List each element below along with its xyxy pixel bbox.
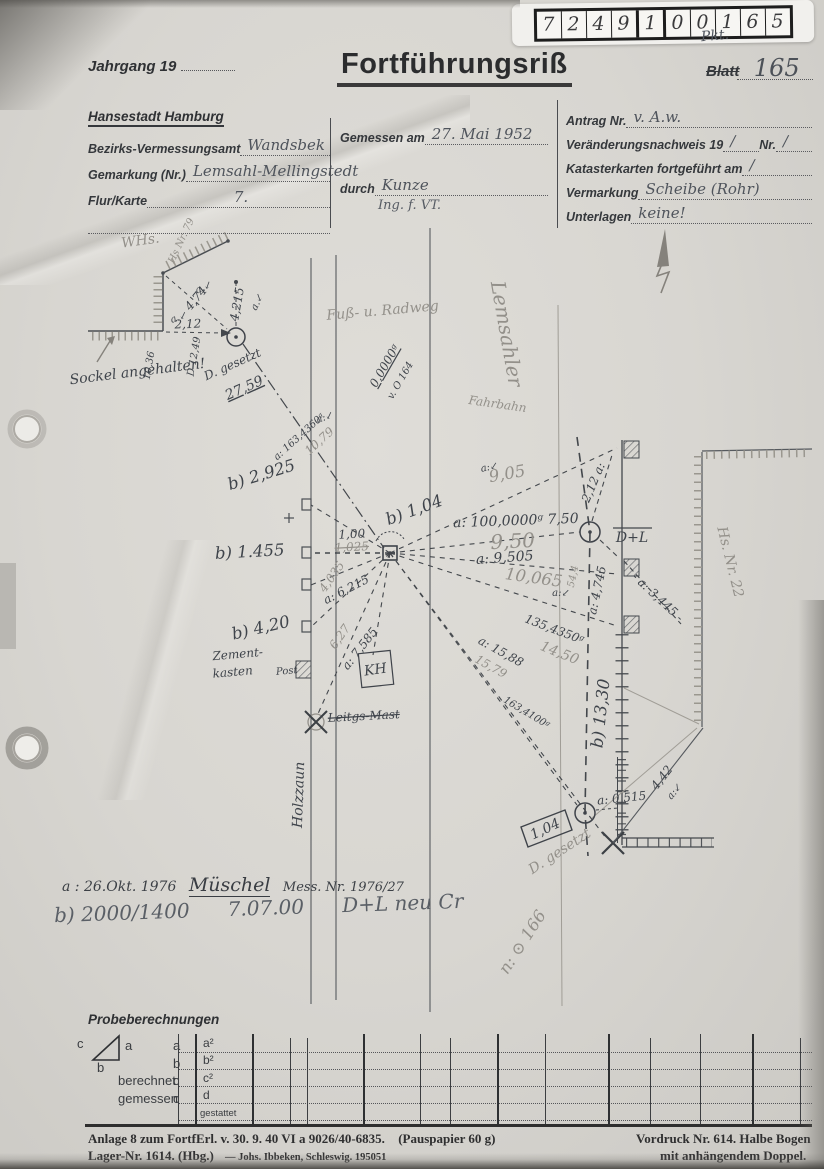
- sketch-label: 0,0000ᵍ: [367, 341, 403, 390]
- table-dotted-line: [178, 1086, 812, 1087]
- sketch-labels: WHs.Hs Nr. 79Sockel angehalten!a.↙a.↙a.↙…: [69, 216, 747, 977]
- sketch-label: 4,42: [647, 763, 675, 793]
- arrowhead: [221, 329, 231, 337]
- sketch-label: kasten: [212, 663, 253, 680]
- sketch-label: D. gesetzt: [525, 825, 594, 878]
- col-header: c²: [203, 1071, 213, 1085]
- sketch-label: D+L: [615, 530, 648, 546]
- sketch-label: Hs. Nr. 22: [713, 524, 746, 599]
- sketch-label: 2,12 a:: [578, 460, 608, 505]
- form-row: Gemarkung (Nr.) Lemsahl-Mellingstedt: [88, 162, 330, 182]
- table-vline: [752, 1034, 754, 1125]
- city-label: Hansestadt Hamburg: [88, 109, 224, 127]
- page-title: Fortführungsriß: [337, 48, 572, 87]
- field-label: Gemessen am: [340, 131, 425, 145]
- stamp-digit: 9: [611, 10, 638, 37]
- field-label: Katasterkarten fortgeführt am: [566, 162, 742, 176]
- sketch-label: a: 163,4360ᵍ: [272, 411, 328, 463]
- footer-doppel: mit anhängendem Doppel.: [660, 1148, 806, 1164]
- sketch-label: 6,27: [326, 621, 353, 651]
- field-value: Lemsahl-Mellingstedt: [186, 162, 330, 182]
- sketch-label: 163,4100ᵍ: [501, 695, 552, 732]
- sketch-label: 10,065: [504, 564, 564, 591]
- triangle-label-a: a: [125, 1038, 132, 1053]
- table-dotted-line: [178, 1069, 812, 1070]
- probe-table: Probeberechnungen c a b a b berechnet c …: [85, 1012, 812, 1130]
- footer-regulation: Anlage 8 zum FortfErl. v. 30. 9. 40 VI a…: [88, 1131, 385, 1146]
- table-vline: [178, 1034, 179, 1125]
- building-measure-lines: [166, 276, 236, 333]
- sketch-label: 4,215: [227, 286, 247, 323]
- sketch-label: b) 4,20: [230, 612, 292, 644]
- survey-point-circle-right: [580, 522, 600, 542]
- table-vline: [545, 1034, 546, 1125]
- table-vline: [650, 1038, 651, 1125]
- scan-top-edge: [0, 0, 520, 8]
- sketch-label: 9,50: [490, 528, 536, 554]
- sketch-label: 1,04: [528, 816, 563, 844]
- paper-crease: [0, 540, 300, 800]
- sketch-label: 10,36: [142, 350, 158, 381]
- field-value: Scheibe (Rohr): [638, 180, 812, 200]
- crossed-out-point: [602, 832, 624, 854]
- blatt-label: Blatt: [706, 63, 739, 80]
- sketch-label: a: 100,0000ᵍ 7,50: [453, 511, 579, 531]
- footer-printer: — Johs. Ibbeken, Schleswig. 195051: [225, 1152, 386, 1163]
- table-vline: [497, 1034, 499, 1125]
- sketch-label: a: 4,745: [585, 565, 609, 616]
- form-row: Vermarkung Scheibe (Rohr): [566, 180, 812, 200]
- sketch-label: a:↙: [315, 409, 335, 425]
- wall-corner-point: [234, 280, 238, 284]
- sketch-label: Post: [275, 665, 299, 678]
- form-divider: [330, 118, 331, 228]
- sketch-label: a: 7,585: [339, 625, 380, 673]
- field-value: ∕: [742, 156, 812, 176]
- sketch-label: Lemsahler: [486, 278, 529, 390]
- sketch-label: v. O 164: [386, 360, 416, 401]
- sketch-label: D. gesetzt: [201, 346, 263, 384]
- table-vline: [450, 1038, 451, 1125]
- pkt-annotation: Pkt.: [700, 27, 729, 45]
- sketch-label: D 12,49: [185, 335, 203, 378]
- sketch-label: b) 1.455: [215, 540, 285, 563]
- table-vline: [700, 1034, 701, 1125]
- sketch-label: - a: 3,445 -: [629, 570, 686, 625]
- sketch-label: 54,4: [566, 564, 581, 588]
- footer-vordruck: Vordruck Nr. 614. Halbe Bogen: [636, 1131, 811, 1147]
- form-row: Flur/Karte 7.: [88, 188, 330, 208]
- sketch-label: Sockel angehalten!: [69, 356, 206, 389]
- north-arrow-icon: [657, 229, 669, 293]
- building-walls: [88, 236, 230, 336]
- footer-line-1: Anlage 8 zum FortfErl. v. 30. 9. 40 VI a…: [88, 1131, 495, 1147]
- footer-paper-spec: (Pauspapier 60 g): [398, 1131, 495, 1146]
- traverse-dashed-line: [577, 437, 590, 856]
- central-station-point: [376, 532, 404, 560]
- sketch-label: 4,74: [181, 284, 210, 314]
- col-header: b²: [203, 1053, 214, 1067]
- field-label: Gemarkung (Nr.): [88, 168, 186, 182]
- annotation-date: a : 26.Okt. 1976: [62, 879, 176, 895]
- stamp-digit: 0: [665, 9, 690, 36]
- form-row: Katasterkarten fortgeführt am ∕: [566, 156, 812, 176]
- field-label: Unterlagen: [566, 210, 631, 224]
- field-value: v. A.w.: [626, 108, 812, 128]
- sockel-arrow: [97, 336, 115, 362]
- measure-line-dashdot: [243, 344, 384, 548]
- sketch-label: a.↙: [194, 279, 215, 296]
- sketch-label: KH: [362, 660, 388, 679]
- blatt-value: 165: [754, 54, 800, 82]
- triangle-label-c: c: [77, 1036, 84, 1051]
- form-row: Veränderungsnachweis 19 ∕ Nr. ∕: [566, 132, 812, 152]
- sketch-label: a: 9,505: [475, 548, 534, 568]
- sketch-label: Zement-: [211, 645, 264, 663]
- jahrgang-label: Jahrgang 19: [88, 58, 176, 75]
- blatt-dotted-line: [737, 79, 813, 80]
- row-label: berechnet: [118, 1073, 176, 1088]
- annotation-signature: Müschel: [189, 874, 271, 897]
- sketch-label: a: 15,88: [476, 633, 526, 669]
- stamp-digit: 7: [536, 11, 561, 38]
- brick-wall: [618, 757, 715, 847]
- scan-corner-shadow: [0, 0, 150, 110]
- field-value: keine!: [631, 204, 812, 224]
- jahrgang-field: Jahrgang 19: [88, 57, 235, 75]
- col-header: a²: [203, 1036, 214, 1050]
- sketch-label: 1,00: [338, 526, 366, 541]
- col-header: d: [203, 1088, 210, 1102]
- sketch-label: n: ⊙ 166: [495, 907, 550, 978]
- row-label: gemessen: [118, 1091, 178, 1106]
- survey-point-circle-top: [227, 328, 245, 346]
- field-label: Bezirks-Vermessungsamt: [88, 142, 240, 156]
- form-right-column: Antrag Nr. v. A.w. Veränderungsnachweis …: [566, 108, 812, 230]
- sketch-label: 2,12: [173, 317, 201, 332]
- sketch-label: Holzzaun: [290, 761, 308, 829]
- measurement-rays: [311, 448, 617, 838]
- table-vline: [800, 1038, 801, 1125]
- hole-punch-top: [10, 412, 44, 446]
- surveyor-title: Ing. f. VT.: [378, 198, 441, 213]
- stamp-digit: 4: [586, 10, 611, 37]
- sketch-label: 1,025: [334, 539, 369, 555]
- field-value: ∕: [776, 132, 812, 152]
- sketch-label: a: 0,515: [596, 788, 647, 807]
- field-label: Antrag Nr.: [566, 114, 626, 128]
- sketch-label: 14,50: [538, 638, 581, 668]
- field-label: Veränderungsnachweis 19: [566, 138, 723, 152]
- kh-box: [358, 650, 393, 687]
- stamp-digit: 6: [740, 8, 765, 35]
- sketch-label: b) 2,925: [225, 455, 297, 493]
- sketch-label: Fahrbahn: [467, 393, 528, 415]
- form-left-column: Hansestadt Hamburg Bezirks-Vermessungsam…: [88, 108, 330, 240]
- footer-line-2: Lager-Nr. 1614. (Hbg.) — Johs. Ibbeken, …: [88, 1148, 386, 1164]
- utility-pole-point: [305, 711, 327, 733]
- sketch-label: a.↙: [249, 292, 266, 313]
- triangle-diagram: [91, 1034, 121, 1062]
- empty-dotted-line: [88, 214, 330, 234]
- sketch-label: a:↙: [480, 460, 500, 474]
- boxed-value-outline: [521, 810, 572, 847]
- survey-point-circle-bottom: [575, 803, 618, 823]
- field-label: durch: [340, 182, 375, 196]
- table-bottom-rule: [85, 1124, 812, 1127]
- table-vline: [307, 1038, 308, 1125]
- field-value: 27. Mai 1952: [425, 125, 548, 145]
- probe-title: Probeberechnungen: [88, 1012, 219, 1027]
- gestattet-label: gestattet: [200, 1108, 236, 1119]
- jahrgang-dotted-line: [181, 57, 235, 71]
- field-value: Kunze: [375, 176, 548, 196]
- table-vline: [252, 1034, 254, 1125]
- survey-cross: [284, 513, 294, 523]
- far-right-boundary: [698, 449, 812, 727]
- table-vline: [195, 1034, 197, 1125]
- stamp-digit: 5: [765, 8, 789, 35]
- sketch-label: b) 1,04: [383, 491, 445, 529]
- sketch-label: 4,035: [316, 559, 348, 596]
- file-number-stamp: 7249100165: [512, 0, 815, 46]
- sketch-label: 10,79: [302, 424, 337, 458]
- sketch-label: a.↙: [169, 309, 189, 325]
- sketch-label: Leitgs-Mast: [326, 707, 400, 725]
- sketch-label: 15,79: [473, 652, 510, 681]
- sketch-label: a:↙: [665, 781, 685, 802]
- right-boundary-wall: [622, 440, 639, 845]
- sketch-label: a:↙: [552, 588, 570, 599]
- sketch-label: b) 13,30: [587, 678, 613, 749]
- table-vline: [608, 1034, 610, 1125]
- footer-lager-nr: Lager-Nr. 1614. (Hbg.): [88, 1148, 214, 1163]
- form-row: Gemessen am 27. Mai 1952: [340, 125, 548, 145]
- field-label: Vermarkung: [566, 186, 638, 200]
- table-dotted-line: [178, 1120, 812, 1121]
- stamp-digit: 1: [638, 9, 665, 36]
- form-mid-column: Gemessen am 27. Mai 1952 durch Kunze: [340, 125, 548, 202]
- sketch-label: 9,05: [487, 461, 526, 486]
- table-dotted-line: [178, 1052, 812, 1053]
- pencil-diagonals: [592, 688, 699, 818]
- fence-posts: [302, 499, 311, 632]
- sketch-label: 135,4350ᵍ: [523, 612, 587, 648]
- table-dotted-line: [178, 1103, 812, 1104]
- post-hatched-square: [296, 661, 311, 678]
- stamp-digit: 2: [561, 11, 586, 38]
- scanned-survey-document: WHs.Hs Nr. 79Sockel angehalten!a.↙a.↙a.↙…: [0, 0, 824, 1169]
- boundary-diagonal: [613, 728, 703, 843]
- field-value: ∕: [723, 132, 759, 152]
- form-row: Bezirks-Vermessungsamt Wandsbek: [88, 136, 330, 156]
- table-vline: [363, 1034, 365, 1125]
- sketch-label: a: 6,215: [321, 572, 371, 607]
- sketch-label: Fuß- u. Radweg: [325, 298, 440, 324]
- road-east-edge: [558, 305, 562, 1006]
- blatt-field: Blatt 165: [706, 54, 800, 82]
- form-row: Antrag Nr. v. A.w.: [566, 108, 812, 128]
- right-point-ties: [592, 455, 681, 624]
- field-value: Wandsbek: [240, 136, 330, 156]
- paper-tab: [0, 563, 16, 649]
- table-vline: [290, 1038, 291, 1125]
- digit-grid: 7249100165: [533, 5, 792, 42]
- form-row: durch Kunze: [340, 176, 548, 196]
- form-row-empty: [88, 214, 330, 234]
- form-divider: [557, 100, 558, 228]
- field-label: Flur/Karte: [88, 194, 147, 208]
- hole-punch-bottom: [9, 730, 45, 766]
- field-label: Nr.: [759, 138, 776, 152]
- form-row: Unterlagen keine!: [566, 204, 812, 224]
- field-value: 7.: [147, 188, 330, 208]
- table-vline: [420, 1034, 421, 1125]
- sketch-label: 27,59: [222, 373, 266, 404]
- triangle-label-b: b: [97, 1060, 104, 1075]
